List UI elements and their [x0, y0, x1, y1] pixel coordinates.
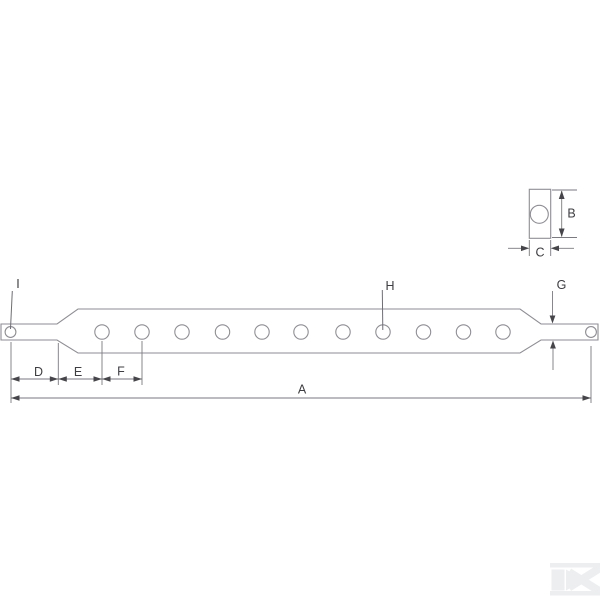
- bar-hole: [496, 325, 510, 339]
- bar-hole: [95, 325, 109, 339]
- bar-hole: [294, 325, 308, 339]
- dimension-DEF: D E F: [11, 341, 142, 403]
- bar-hole: [215, 325, 229, 339]
- bar-hole: [456, 325, 470, 339]
- dim-label-g: G: [557, 278, 567, 292]
- dim-label-b: B: [567, 207, 575, 221]
- bar-hole: [416, 325, 430, 339]
- bar-hole: [336, 325, 350, 339]
- dim-label-c: C: [535, 246, 544, 260]
- bar-hole: [135, 325, 149, 339]
- dimension-B: B: [552, 190, 577, 238]
- dim-label-a: A: [298, 383, 307, 397]
- dim-label-d: D: [34, 365, 43, 379]
- dimension-C: C: [508, 240, 574, 260]
- bar-hole: [175, 325, 189, 339]
- dim-label-f: F: [117, 365, 125, 379]
- drawbar-drawing: B C I H G D: [0, 0, 600, 600]
- drawbar-outline: [1, 309, 598, 353]
- dim-label-i: I: [16, 277, 19, 291]
- callout-H: H: [382, 279, 394, 330]
- dim-label-h: H: [385, 279, 394, 293]
- brand-watermark-k-icon: [550, 563, 600, 596]
- right-pin-hole: [586, 327, 597, 338]
- bar-hole: [255, 325, 269, 339]
- cross-section-detail: [529, 189, 550, 238]
- dimension-A: A: [11, 346, 591, 403]
- technical-diagram: B C I H G D: [0, 0, 600, 600]
- dim-label-e: E: [74, 365, 82, 379]
- bar-holes: [95, 325, 510, 339]
- cross-section-hole: [530, 205, 548, 223]
- callout-I: I: [11, 277, 20, 329]
